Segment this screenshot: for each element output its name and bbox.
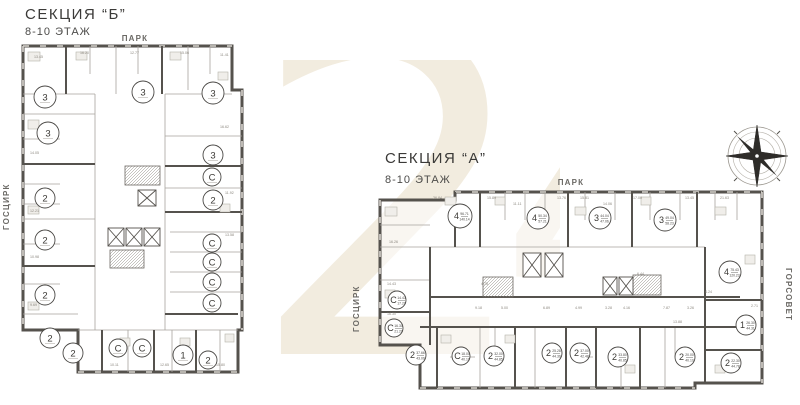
svg-text:22.30: 22.30 <box>731 359 740 363</box>
room-area-label: 10.98 <box>30 255 39 259</box>
apartment-unit-marker: С <box>109 339 127 357</box>
svg-text:2: 2 <box>47 333 52 344</box>
svg-text:2: 2 <box>725 358 730 368</box>
svg-text:40.10: 40.10 <box>685 358 694 362</box>
svg-text:С: С <box>390 295 397 305</box>
room-area-label: 15.89 <box>487 196 496 200</box>
room-area-label: 11.11 <box>513 202 521 206</box>
svg-text:2: 2 <box>42 193 47 204</box>
apartment-unit-marker: 232.0044.85 <box>484 346 504 366</box>
svg-text:1: 1 <box>740 320 745 330</box>
room-area-label: 13.45 <box>34 55 43 59</box>
room-area-label: 12.21 <box>30 209 39 213</box>
room-area-label: 16.26 <box>389 240 398 244</box>
svg-text:33.80: 33.80 <box>618 353 627 357</box>
svg-text:С: С <box>387 323 394 333</box>
svg-text:96.71: 96.71 <box>460 212 469 216</box>
svg-text:44.04: 44.04 <box>600 214 609 218</box>
svg-text:44.85: 44.85 <box>494 357 503 361</box>
svg-text:49.04: 49.04 <box>665 216 674 220</box>
apartment-unit-marker: 220.0040.10 <box>675 347 695 367</box>
apartment-unit-marker: 3 <box>132 81 154 103</box>
apartment-unit-marker: С14.4317.20 <box>388 291 406 309</box>
section-a-title: СЕКЦИЯ “А” <box>385 150 486 167</box>
apartment-unit-marker: 450.3457.21 <box>527 207 549 229</box>
apartment-unit-marker: 222.3044.78 <box>721 353 741 373</box>
svg-text:47.06: 47.06 <box>600 219 609 223</box>
svg-text:2: 2 <box>410 350 415 360</box>
room-area-label: 4.24 <box>705 290 712 294</box>
svg-text:50.34: 50.34 <box>538 214 547 218</box>
room-area-label: 36.84 <box>433 196 442 200</box>
svg-text:43.09: 43.09 <box>416 356 425 360</box>
svg-text:2: 2 <box>546 348 551 358</box>
room-area-label: 13.45 <box>685 196 694 200</box>
room-area-label: 3.26 <box>687 306 694 310</box>
compass-rose-icon <box>722 121 792 191</box>
room-area-label: 16.30 <box>387 312 396 316</box>
room-area-label: 17.00 <box>633 196 642 200</box>
apartment-unit-marker: 237.6643.09 <box>406 345 426 365</box>
svg-text:3: 3 <box>210 150 215 161</box>
room-area-label: 7.87 <box>663 306 670 310</box>
svg-text:С: С <box>115 343 122 354</box>
apartment-unit-marker: 2 <box>63 343 83 363</box>
svg-text:2: 2 <box>210 195 215 206</box>
section-b-floor-range: 8-10 ЭТАЖ <box>25 26 91 38</box>
svg-text:3: 3 <box>45 128 50 139</box>
stairwell-b-top <box>125 166 160 185</box>
apartment-unit-marker: С <box>203 234 221 252</box>
room-area-label: 6.44 <box>637 272 644 276</box>
room-area-label: 11.41 <box>220 53 229 57</box>
room-area-label: 14.05 <box>30 151 39 155</box>
svg-text:40.10: 40.10 <box>461 357 470 361</box>
apartment-unit-marker: 475.43120.23 <box>719 261 741 283</box>
room-area-label: 13.88 <box>673 320 682 324</box>
svg-text:44.78: 44.78 <box>731 364 740 368</box>
svg-text:2: 2 <box>612 352 617 362</box>
svg-text:С: С <box>209 277 216 288</box>
apartment-unit-marker: С <box>203 253 221 271</box>
apartment-unit-marker: 126.3044.31 <box>736 315 756 335</box>
svg-text:С: С <box>139 343 146 354</box>
apartment-unit-marker: С18.0040.10 <box>452 347 470 365</box>
page-background: 24 СЕКЦИЯ “Б” 8-10 ЭТАЖ ПАРК ГОСЦИРК СЕК… <box>0 0 800 404</box>
street-label-goscirk-a: ГОСЦИРК <box>352 262 361 332</box>
apartment-unit-marker: 2 <box>35 285 55 305</box>
room-area-label: 9.69 <box>30 303 37 307</box>
room-area-label: 5.00 <box>501 306 508 310</box>
svg-text:4: 4 <box>532 213 537 223</box>
svg-text:2: 2 <box>574 348 579 358</box>
room-area-label: 14.06 <box>603 202 612 206</box>
svg-text:3: 3 <box>594 213 599 223</box>
svg-text:120.23: 120.23 <box>729 273 739 277</box>
svg-text:44.39: 44.39 <box>552 354 561 358</box>
svg-text:17.20: 17.20 <box>397 301 406 305</box>
street-label-park-a: ПАРК <box>546 178 596 187</box>
svg-text:С: С <box>209 257 216 268</box>
apartment-unit-marker: С <box>203 294 221 312</box>
room-area-label: 12.77 <box>130 51 139 55</box>
room-area-label: 13.76 <box>557 196 566 200</box>
svg-text:42.48: 42.48 <box>580 354 589 358</box>
room-area-label: 10.11 <box>110 363 119 367</box>
apartment-unit-marker: 3 <box>37 122 59 144</box>
svg-text:С: С <box>454 351 461 361</box>
svg-text:3: 3 <box>659 215 664 225</box>
apartment-unit-marker: 344.0447.06 <box>589 207 611 229</box>
room-area-label: 3.28 <box>605 306 612 310</box>
stairwell-a-right <box>633 275 661 295</box>
apartment-unit-marker: С <box>203 273 221 291</box>
svg-text:37.66: 37.66 <box>416 351 425 355</box>
svg-text:4: 4 <box>454 211 459 221</box>
svg-text:2: 2 <box>70 348 75 359</box>
svg-text:25.28: 25.28 <box>552 349 561 353</box>
room-area-label: 13.58 <box>225 233 234 237</box>
svg-text:32.00: 32.00 <box>494 352 503 356</box>
svg-text:20.00: 20.00 <box>685 353 694 357</box>
svg-text:14.43: 14.43 <box>397 296 406 300</box>
room-area-label: 16.20 <box>80 51 89 55</box>
svg-text:4: 4 <box>724 267 729 277</box>
apartment-unit-marker: 349.0458.23 <box>654 209 676 231</box>
apartment-unit-marker: 3 <box>202 82 224 104</box>
svg-text:57.21: 57.21 <box>538 219 547 223</box>
room-area-label: 21.63 <box>720 196 729 200</box>
apartment-unit-marker: 1 <box>173 345 193 365</box>
floorplan-section-b: 33333С222СССС222СС12 13.4516.2012.7715.0… <box>20 44 250 374</box>
svg-text:2: 2 <box>205 355 210 366</box>
street-label-gorsovet: ГОРСОВЕТ <box>784 268 793 348</box>
apartment-unit-marker: 2 <box>40 328 60 348</box>
svg-text:44.31: 44.31 <box>746 326 755 330</box>
svg-text:40.85: 40.85 <box>618 358 627 362</box>
room-area-label: 4.16 <box>623 306 630 310</box>
svg-text:2: 2 <box>42 235 47 246</box>
street-label-park-b: ПАРК <box>110 34 160 43</box>
room-area-label: 4.99 <box>575 306 582 310</box>
svg-text:2: 2 <box>679 352 684 362</box>
room-area-label: 6.89 <box>543 306 550 310</box>
apartment-unit-marker: 2 <box>35 188 55 208</box>
room-area-label: 12.65 <box>160 363 169 367</box>
apartment-unit-marker: С <box>203 168 221 186</box>
svg-text:С: С <box>209 298 216 309</box>
apartment-unit-marker: 2 <box>199 351 217 369</box>
svg-text:58.23: 58.23 <box>665 221 674 225</box>
room-area-label: 15.81 <box>580 196 589 200</box>
apartment-unit-marker: 2 <box>35 230 55 250</box>
floorplan-section-a: 496.71140.14450.3457.21344.0447.06349.04… <box>375 185 770 395</box>
svg-text:21.20: 21.20 <box>394 329 403 333</box>
svg-text:3: 3 <box>140 87 145 98</box>
section-b-title: СЕКЦИЯ “Б” <box>25 6 126 23</box>
section-a-floor-range: 8-10 ЭТАЖ <box>385 174 451 186</box>
room-area-label: 15.06 <box>180 51 189 55</box>
room-area-label: 14.43 <box>387 282 396 286</box>
apartment-unit-marker: 3 <box>203 145 223 165</box>
svg-text:С: С <box>209 172 216 183</box>
svg-text:75.43: 75.43 <box>730 268 739 272</box>
room-area-label: 2.71 <box>751 304 758 308</box>
room-area-label: 4.75 <box>481 282 488 286</box>
apartment-unit-marker: 225.2844.39 <box>542 343 562 363</box>
apartment-unit-marker: 237.0042.48 <box>570 343 590 363</box>
apartment-unit-marker: 2 <box>203 190 223 210</box>
street-label-goscirk-b: ГОСЦИРК <box>2 160 11 230</box>
svg-text:37.00: 37.00 <box>580 349 589 353</box>
svg-text:2: 2 <box>42 290 47 301</box>
svg-text:26.30: 26.30 <box>746 321 755 325</box>
room-area-label: 16.62 <box>220 125 229 129</box>
svg-text:140.14: 140.14 <box>459 217 469 221</box>
apartment-unit-marker: 3 <box>34 86 56 108</box>
svg-text:3: 3 <box>210 88 215 99</box>
svg-text:3: 3 <box>42 92 47 103</box>
stairwell-a-left <box>483 277 513 297</box>
apartment-unit-marker: С16.3021.20 <box>385 319 403 337</box>
svg-text:2: 2 <box>488 351 493 361</box>
svg-text:С: С <box>209 238 216 249</box>
apartment-unit-marker: 496.71140.14 <box>448 204 472 228</box>
room-area-label: 15.80 <box>216 363 225 367</box>
svg-text:16.30: 16.30 <box>394 324 403 328</box>
svg-text:1: 1 <box>180 350 185 361</box>
stairwell-b-bottom <box>110 250 144 268</box>
room-area-label: 9.18 <box>475 306 482 310</box>
apartment-unit-marker: С <box>133 339 151 357</box>
room-area-label: 11.92 <box>225 191 234 195</box>
apartment-unit-marker: 233.8040.85 <box>608 347 628 367</box>
svg-text:18.00: 18.00 <box>461 352 470 356</box>
